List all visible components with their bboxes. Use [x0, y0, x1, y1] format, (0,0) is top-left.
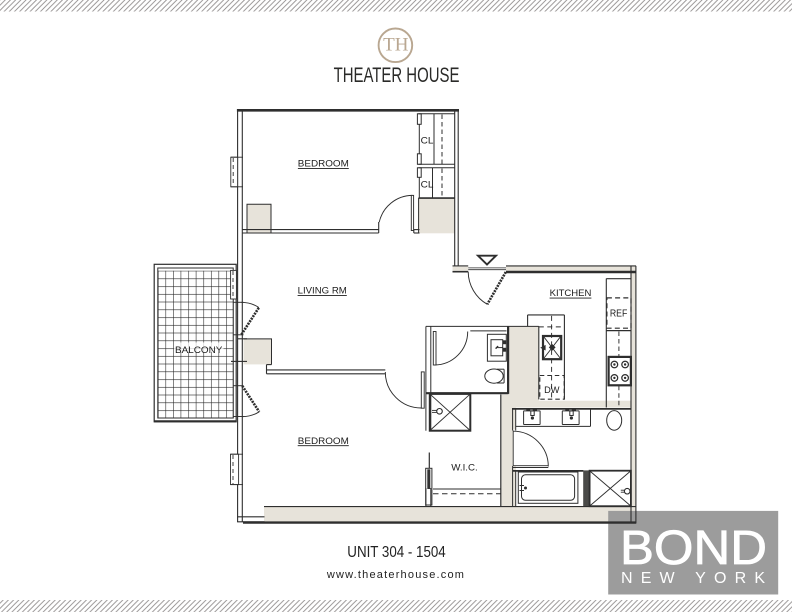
svg-text:CL: CL	[421, 179, 434, 189]
svg-text:TH: TH	[383, 35, 409, 56]
svg-text:REF: REF	[610, 307, 628, 319]
svg-text:BALCONY: BALCONY	[175, 345, 223, 356]
svg-text:LIVING RM: LIVING RM	[298, 286, 347, 297]
svg-text:W.I.C.: W.I.C.	[451, 462, 478, 473]
svg-text:BEDROOM: BEDROOM	[298, 436, 349, 447]
svg-text:CL: CL	[421, 136, 434, 146]
svg-text:BOND: BOND	[620, 521, 767, 575]
svg-text:KITCHEN: KITCHEN	[550, 288, 592, 299]
svg-text:UNIT 304 - 1504: UNIT 304 - 1504	[347, 544, 445, 561]
svg-text:DW: DW	[544, 385, 559, 396]
svg-text:www.theaterhouse.com: www.theaterhouse.com	[326, 569, 465, 581]
svg-text:THEATER HOUSE: THEATER HOUSE	[334, 62, 460, 86]
